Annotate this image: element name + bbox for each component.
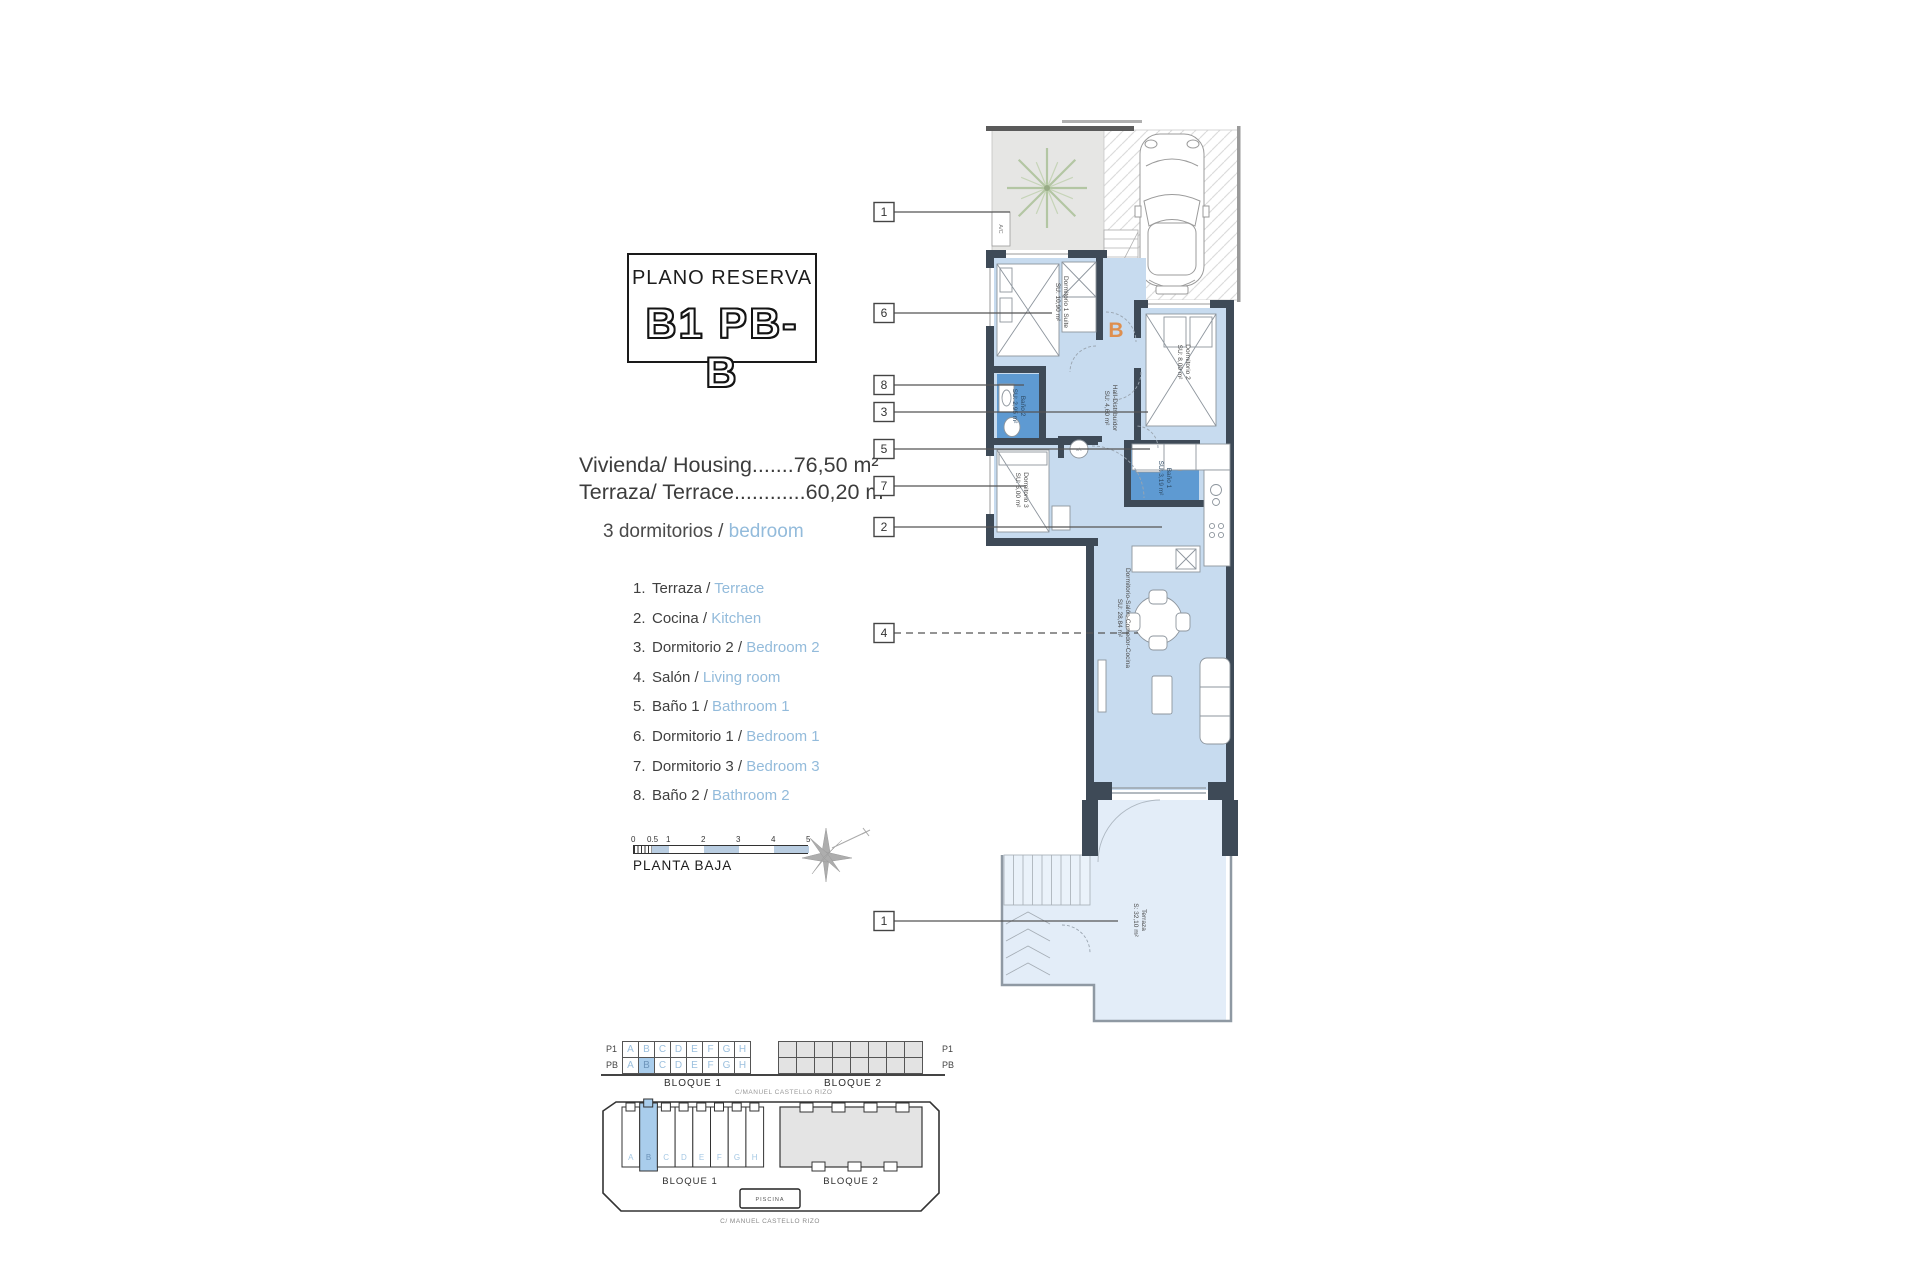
ac-unit-label: A/C (997, 224, 1003, 233)
legend-number: 5. (633, 692, 652, 722)
legend-en: Kitchen (711, 610, 761, 627)
room-label: Dormitorio 3 (1022, 472, 1029, 508)
floor-plan-sheet: PLANO RESERVA B1 PB-B Vivienda/ Housing.… (0, 0, 1920, 1280)
legend-es: Baño 2 / (652, 787, 712, 804)
schedule-cell-bloque1: G (718, 1041, 735, 1058)
palm-tree (1007, 148, 1087, 228)
schedule-cell-bloque1: H (734, 1041, 751, 1058)
terrace-area-line: Terraza/ Terrace............60,20 m² (579, 479, 890, 506)
legend-es: Dormitorio 3 / (652, 758, 746, 775)
room-label: Terraza (1140, 909, 1147, 931)
site-bloque2 (780, 1103, 922, 1171)
legend-en: Bathroom 1 (712, 698, 790, 715)
schedule-cell-bloque1: F (702, 1041, 719, 1058)
schedule-cell-bloque2 (886, 1057, 905, 1074)
legend-number: 3. (633, 633, 652, 663)
schedule-cell-bloque2 (868, 1057, 887, 1074)
schedule-cell-bloque1: A (622, 1041, 639, 1058)
housing-area-line: Vivienda/ Housing.......76,50 m² (579, 452, 890, 479)
schedule-cell-bloque2 (832, 1057, 851, 1074)
schedule-cell-bloque1: G (718, 1057, 735, 1074)
row-label-right: PB (942, 1060, 954, 1070)
schedule-cell-bloque2 (814, 1057, 833, 1074)
legend-item: 1.Terraza / Terrace (633, 574, 820, 604)
scale-seg (704, 846, 739, 853)
legend-number: 6. (633, 722, 652, 752)
schedule-cell-bloque1: C (654, 1041, 671, 1058)
site-unit-letter: G (734, 1153, 740, 1162)
callout-number: 4 (881, 626, 888, 640)
entrance-block-letter: B (1108, 319, 1123, 342)
schedule-cell-bloque1: H (734, 1057, 751, 1074)
legend-es: Terraza / (652, 580, 714, 597)
car-top-view (1135, 134, 1209, 294)
room-label: Dormitorio 2 (1184, 344, 1191, 380)
schedule-cell-bloque2 (832, 1041, 851, 1058)
schedule-cell-bloque2 (796, 1041, 815, 1058)
legend-item: 2.Cocina / Kitchen (633, 604, 820, 634)
bedrooms-line: 3 dormitorios / bedroom (603, 521, 804, 543)
schedule-cell-bloque2 (778, 1057, 797, 1074)
legend-number: 2. (633, 604, 652, 634)
room-label: Dormitorio 1 Suite (1062, 276, 1069, 328)
bloque2-schedule-label: BLOQUE 2 (824, 1078, 882, 1089)
legend-en: Bathroom 2 (712, 787, 790, 804)
scale-tick: 1 (666, 835, 670, 844)
schedule-cell-bloque1: D (670, 1057, 687, 1074)
scale-tick: 4 (771, 835, 775, 844)
legend-es: Salón / (652, 669, 703, 686)
callout-number: 1 (881, 914, 888, 928)
legend-es: Dormitorio 2 / (652, 639, 746, 656)
street-label-bottom: C/ MANUEL CASTELLO RIZO (720, 1218, 820, 1225)
schedule-cell-bloque2 (904, 1057, 923, 1074)
schedule-cell-bloque1: B (638, 1057, 655, 1074)
site-unit-letter: D (681, 1153, 687, 1162)
schedule-cell-bloque2 (850, 1057, 869, 1074)
scale-tick: 3 (736, 835, 740, 844)
schedule-cell-bloque1: E (686, 1057, 703, 1074)
room-area: S: 32,10 m² (1132, 903, 1139, 937)
scale-seg (652, 846, 670, 853)
area-summary: Vivienda/ Housing.......76,50 m² Terraza… (579, 452, 890, 506)
rear-terrace (1002, 800, 1231, 1021)
legend-en: Bedroom 2 (746, 639, 819, 656)
legend-item: 3.Dormitorio 2 / Bedroom 2 (633, 633, 820, 663)
legend-item: 8.Baño 2 / Bathroom 2 (633, 781, 820, 811)
schedule-cell-bloque2 (904, 1041, 923, 1058)
legend-en: Bedroom 3 (746, 758, 819, 775)
callout-number: 6 (881, 306, 888, 320)
callout-number: 2 (881, 520, 888, 534)
legend-en: Terrace (714, 580, 764, 597)
site-unit-letter: E (699, 1153, 704, 1162)
bloque1-schedule-label: BLOQUE 1 (664, 1078, 722, 1089)
legend-es: Cocina / (652, 610, 711, 627)
callout-number: 3 (881, 405, 888, 419)
schedule-cell-bloque1: A (622, 1057, 639, 1074)
room-label: Dormitorio-Salón-Comedor-Cocina (1124, 568, 1131, 668)
schedule-cell-bloque2 (814, 1041, 833, 1058)
legend-item: 7.Dormitorio 3 / Bedroom 3 (633, 752, 820, 782)
bloque1-site-label: BLOQUE 1 (662, 1176, 718, 1187)
legend-number: 1. (633, 574, 652, 604)
schedule-cell-bloque1: C (654, 1057, 671, 1074)
scale-tick: 2 (701, 835, 705, 844)
legend-number: 4. (633, 663, 652, 693)
row-label-right: P1 (942, 1044, 953, 1054)
room-area: SU: 6,00 m² (1014, 473, 1021, 509)
callout-number: 1 (881, 205, 888, 219)
bloque2-site-label: BLOQUE 2 (823, 1176, 879, 1187)
callout-number: 7 (881, 479, 888, 493)
site-unit-letter: A (628, 1153, 634, 1162)
room-area: SU: 4,60 m² (1103, 391, 1110, 427)
scale-tick: 0 (631, 835, 635, 844)
site-unit-letter: C (663, 1153, 669, 1162)
schedule-cell-bloque2 (886, 1041, 905, 1058)
room-area: SU: 2,95 m² (1011, 389, 1018, 425)
planta-baja-label: PLANTA BAJA (633, 858, 732, 873)
schedule-cell-bloque2 (796, 1057, 815, 1074)
room-label: Baño 2 (1019, 396, 1026, 417)
room-area: SU: 3,19 m² (1157, 461, 1164, 497)
scale-tick: 0.5 (647, 835, 658, 844)
room-legend: 1.Terraza / Terrace2.Cocina / Kitchen3.D… (633, 574, 820, 811)
sliding-door (1112, 788, 1206, 793)
legend-item: 5.Baño 1 / Bathroom 1 (633, 692, 820, 722)
legend-item: 6.Dormitorio 1 / Bedroom 1 (633, 722, 820, 752)
schedule-cell-bloque2 (778, 1041, 797, 1058)
bedrooms-es: 3 dormitorios / (603, 521, 723, 542)
legend-number: 7. (633, 752, 652, 782)
schedule-rule (601, 1074, 945, 1076)
site-plan: ABCDEFGH BLOQUE 1 BLOQUE 2 PISCINA C/ MA… (595, 1095, 950, 1230)
row-label-left: P1 (606, 1044, 617, 1054)
title-box: PLANO RESERVA B1 PB-B (627, 253, 817, 363)
legend-en: Living room (703, 669, 781, 686)
row-label-left: PB (606, 1060, 618, 1070)
scale-bar-strip (633, 845, 808, 854)
scale-seg (634, 846, 652, 853)
legend-item: 4.Salón / Living room (633, 663, 820, 693)
schedule-cell-bloque2 (850, 1041, 869, 1058)
site-unit-letter: H (752, 1153, 758, 1162)
schedule-cell-bloque1: B (638, 1041, 655, 1058)
site-unit-letter: F (717, 1153, 722, 1162)
bedrooms-en: bedroom (729, 521, 804, 542)
schedule-cell-bloque1: E (686, 1041, 703, 1058)
legend-en: Bedroom 1 (746, 728, 819, 745)
plan-code: B1 PB-B (629, 300, 815, 398)
legend-es: Dormitorio 1 / (652, 728, 746, 745)
floor-plan-drawing: A/C (860, 95, 1320, 1040)
callout-number: 8 (881, 378, 888, 392)
piscina-label: PISCINA (755, 1197, 784, 1203)
schedule-cell-bloque2 (868, 1041, 887, 1058)
room-area: SU: 10,90 m² (1054, 283, 1061, 322)
site-unit-letter: B (646, 1153, 651, 1162)
callout-number: 5 (881, 442, 888, 456)
site-bloque1: ABCDEFGH (622, 1099, 764, 1171)
schedule-cell-bloque1: F (702, 1057, 719, 1074)
room-area: SU: 28,84 m² (1116, 599, 1123, 638)
legend-number: 8. (633, 781, 652, 811)
schedule-cell-bloque1: D (670, 1041, 687, 1058)
plan-subtitle: PLANO RESERVA (629, 267, 815, 290)
room-label: Hall-Distribuidor (1111, 385, 1118, 432)
room-area: SU: 8,00 m² (1176, 345, 1183, 381)
room-label: Baño 1 (1165, 468, 1172, 489)
legend-es: Baño 1 / (652, 698, 712, 715)
